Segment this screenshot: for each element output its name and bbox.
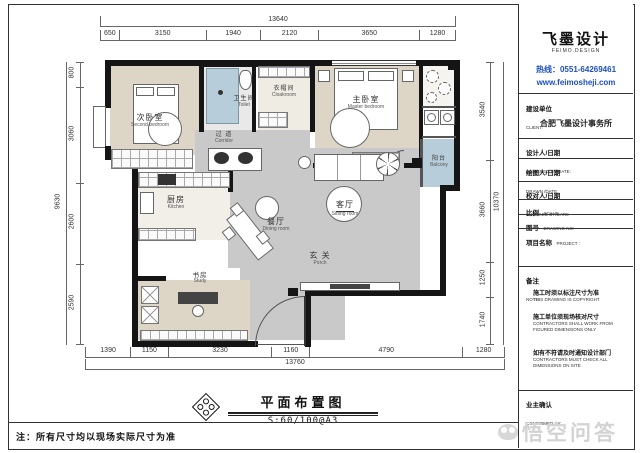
wall: [199, 60, 204, 132]
wall: [105, 60, 205, 66]
note-item: 施工单位须现场核对尺寸 CONTRACTORS SHALL WORK FROM …: [533, 312, 633, 333]
label-cloakroom: 衣帽间 Cloakroom: [264, 86, 304, 98]
title-block: 飞墨设计 FEIMO.DESIGN 热线：0551-64269461 www.f…: [518, 4, 633, 448]
dim-top-segments: 650 3150 1940 2120 3650 1280: [100, 30, 456, 41]
note-item: 如有不符请及时通知设计部门 CONTRACTORS MUST CHECK ALL…: [533, 348, 633, 369]
brand-hotline: 热线：0551-64269461: [519, 64, 633, 75]
nightstand: [318, 70, 330, 82]
bay-window: [93, 106, 106, 148]
dim-right-total-line: [503, 62, 504, 345]
label-master-bedroom: 主卧室 Master bedroom: [338, 96, 394, 110]
dim-value: 3660: [480, 190, 487, 230]
storage-cabinet: [141, 306, 159, 324]
washer-drum: [443, 113, 452, 122]
partition: [422, 136, 456, 138]
dim-value: 1250: [480, 258, 487, 298]
dim-tick: [486, 160, 494, 161]
dim-value: 2120: [282, 30, 298, 37]
column: [288, 288, 298, 296]
caption-block: 平面布置图 S:60/100@A3: [228, 392, 378, 426]
bed-round-rug: [330, 108, 370, 148]
sofa-seam: [360, 155, 361, 180]
dim-value: 1150: [142, 347, 157, 354]
dim-value: 1940: [225, 30, 241, 37]
sofa-seam: [337, 155, 338, 180]
partition: [422, 106, 456, 108]
floor-drain: [218, 90, 223, 95]
wall: [132, 276, 166, 281]
ceiling-fan: [376, 152, 400, 176]
pillow: [136, 87, 154, 96]
caption-title: 平面布置图: [228, 392, 378, 411]
dim-value: 3650: [361, 30, 377, 37]
plant: [438, 82, 451, 95]
storage-cabinet: [141, 286, 159, 304]
bookshelf: [140, 330, 248, 341]
dim-value: 1280: [476, 347, 492, 354]
dim-left-total-line: [66, 62, 67, 345]
plant: [426, 92, 437, 103]
dim-value: 1280: [430, 30, 446, 37]
label-second-bedroom: 次卧室 Second bedroom: [128, 114, 172, 128]
dim-right-seg-line: [490, 62, 491, 345]
dim-value: 13640: [268, 16, 287, 23]
dim-bottom-total: 13760: [85, 359, 505, 370]
label-balcony: 阳台 Balcony: [424, 156, 454, 168]
label-study: 书房 Study: [182, 272, 218, 285]
label-dining: 餐厅 Dining room: [258, 218, 294, 232]
caption-scale: S:60/100@A3: [228, 416, 378, 426]
column: [448, 60, 460, 70]
dim-tick: [486, 262, 494, 263]
dim-value: 3150: [155, 30, 171, 37]
dim-tick: [486, 62, 494, 63]
dim-left-seg-line: [80, 62, 81, 345]
dim-value: 650: [104, 30, 116, 37]
nightstand: [402, 70, 414, 82]
brand-logo-en: FEIMO.DESIGN: [519, 48, 633, 54]
note-divider: [8, 422, 518, 423]
sheet-note: 注：所有尺寸均以现场实际尺寸为准: [16, 430, 176, 443]
dim-value: 1740: [480, 300, 487, 340]
wall: [454, 60, 460, 191]
dim-tick: [76, 183, 84, 184]
note-item: 施工时须以标注尺寸为准 THIS DRAWING IS COPYRIGHT: [533, 288, 633, 303]
washer-drum: [427, 113, 436, 122]
dim-tick: [76, 87, 84, 88]
dim-value: 1390: [100, 347, 116, 354]
wall: [132, 341, 258, 347]
wall: [440, 188, 446, 296]
pillow: [338, 71, 364, 81]
dim-value: 9630: [55, 182, 62, 222]
brand-website[interactable]: www.feimosheji.com: [519, 78, 633, 87]
dim-tick: [76, 344, 84, 345]
sink: [238, 152, 253, 164]
dim-value: 2600: [69, 202, 76, 242]
tv: [330, 284, 370, 289]
dim-tick: [76, 62, 84, 63]
fridge: [140, 192, 154, 214]
column: [412, 158, 422, 168]
dim-tick: [76, 264, 84, 265]
desk-chair: [192, 305, 204, 317]
dim-tick: [486, 297, 494, 298]
toilet-fixture: [239, 70, 252, 90]
dim-value: 1160: [283, 347, 298, 354]
dim-top-total: 13640: [100, 16, 456, 27]
dim-value: 3060: [69, 114, 76, 154]
dim-value: 3540: [480, 90, 487, 130]
dim-value: 3230: [212, 347, 228, 354]
dim-value: 800: [69, 53, 76, 93]
dim-value: 10370: [494, 182, 501, 222]
wardrobe-second: [111, 149, 193, 169]
cooktop: [158, 174, 176, 185]
sofa: [314, 154, 384, 181]
sink: [214, 152, 229, 164]
row-project: 项目名称 PROJECT :: [526, 232, 580, 250]
wukong-logo-icon: [498, 424, 518, 440]
dim-value: 4790: [378, 347, 394, 354]
cloak-cabinet: [258, 112, 288, 128]
label-living-circle: 客厅 Sitting room: [326, 186, 362, 222]
entry-door-leaf: [304, 296, 306, 346]
label-kitchen: 厨房 Kitchen: [158, 196, 194, 210]
desk: [178, 292, 218, 304]
dim-tick: [486, 344, 494, 345]
dim-bottom-segments: 1390 1150 3230 1160 4790 1280: [85, 347, 505, 358]
drawing-sheet: 13640 650 3150 1940 2120 3650 1280 1390 …: [0, 0, 640, 453]
label-corridor: 过 道 Corridor: [204, 132, 244, 144]
watermark: 悟空问答: [498, 417, 618, 447]
label-toilet: 卫生间 Toilet: [228, 96, 260, 108]
client-name: 合肥飞墨设计事务所: [519, 118, 633, 129]
dim-value: 2590: [69, 283, 76, 323]
cloak-cabinet: [258, 66, 310, 78]
kitchen-counter: [138, 172, 230, 188]
wall: [105, 60, 111, 108]
brand-logo: 飞墨设计: [519, 28, 633, 49]
dim-value: 13760: [285, 359, 304, 366]
label-porch: 玄 关 Porch: [300, 252, 340, 266]
side-table: [298, 156, 311, 169]
pillow: [368, 71, 394, 81]
window: [332, 60, 416, 66]
watermark-text: 悟空问答: [522, 417, 618, 447]
kitchen-lower-counter: [138, 228, 196, 241]
plant: [426, 70, 439, 83]
wall: [310, 60, 315, 132]
pillow: [157, 87, 175, 96]
